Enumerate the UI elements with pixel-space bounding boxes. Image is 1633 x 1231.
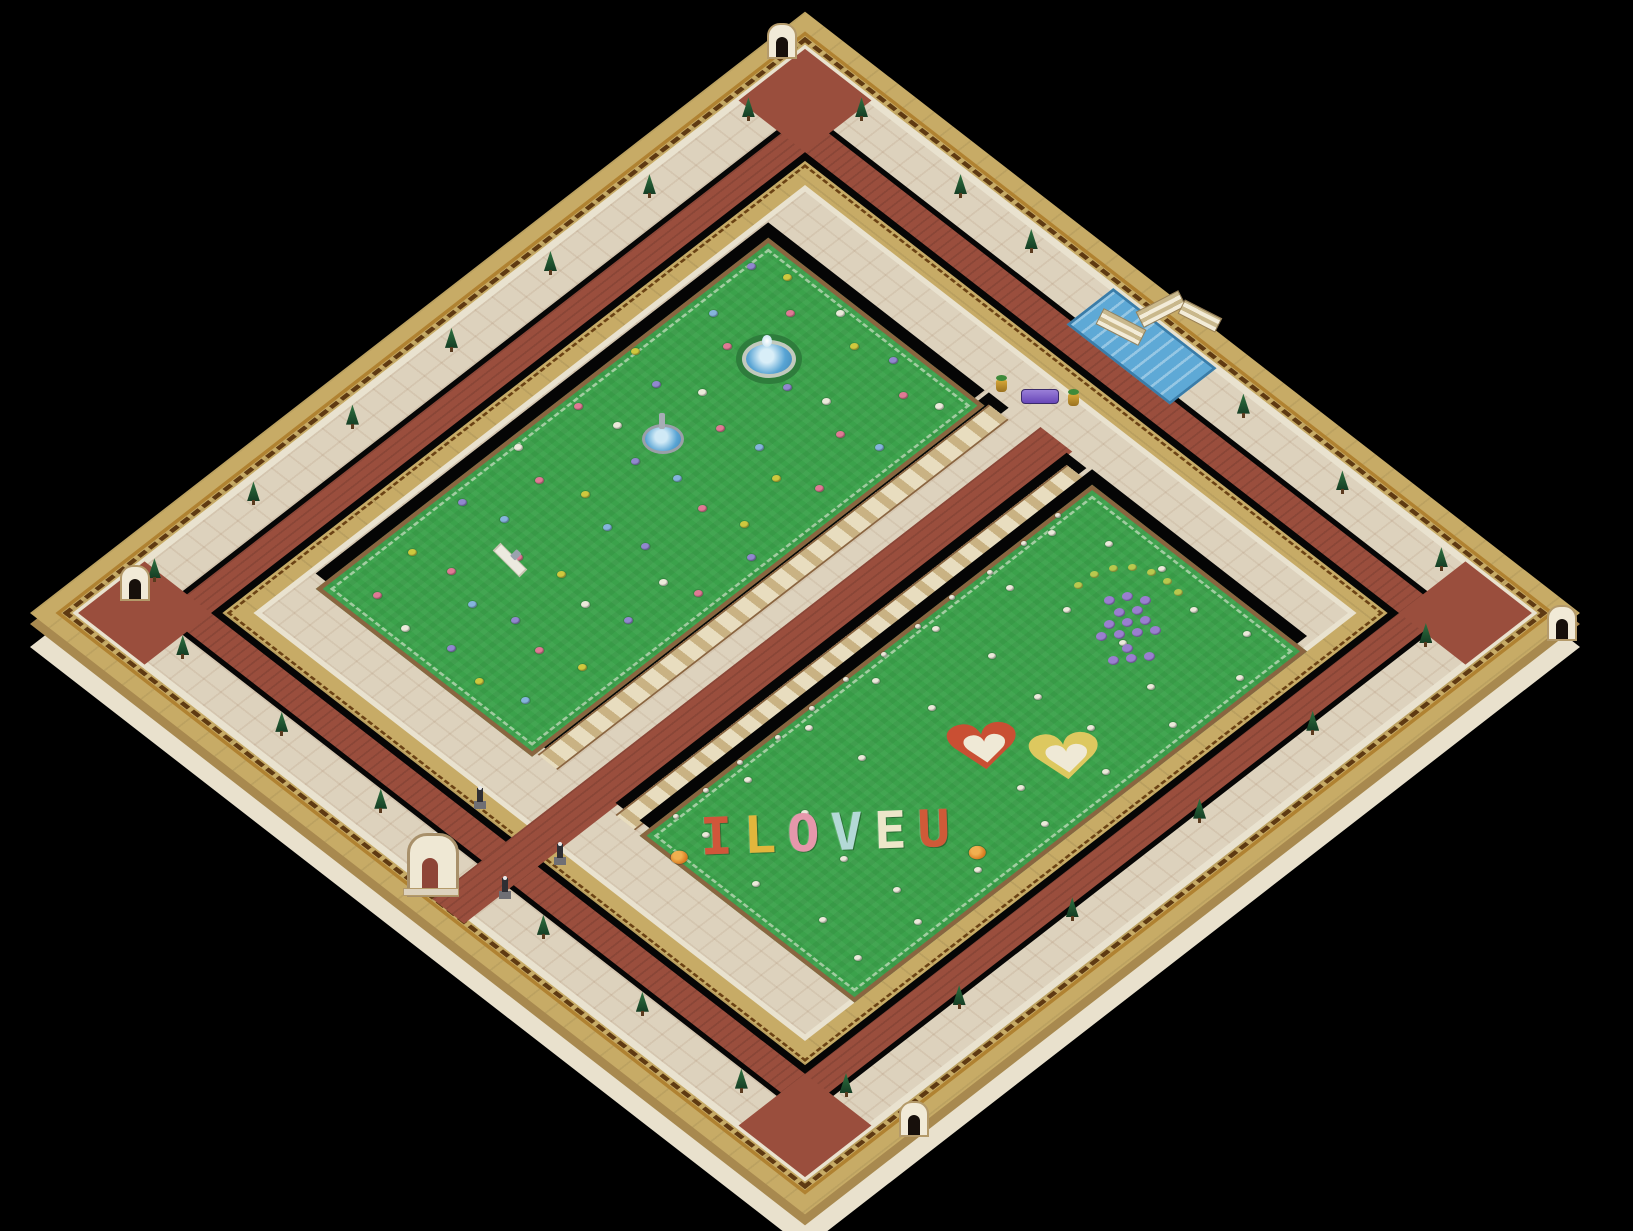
flower-cluster bbox=[843, 677, 849, 682]
tree-trunk bbox=[1030, 248, 1033, 253]
tree-foliage bbox=[445, 328, 458, 348]
flower-cluster bbox=[458, 499, 467, 506]
flower-cluster bbox=[1105, 541, 1113, 547]
cypress-tree bbox=[1193, 799, 1206, 823]
flower-cluster bbox=[1236, 675, 1244, 681]
totem-flower-dot bbox=[1104, 620, 1115, 629]
totem-flower-dot bbox=[1109, 565, 1118, 572]
flower-cluster bbox=[988, 653, 996, 659]
tree-trunk bbox=[845, 1092, 848, 1097]
cypress-tree bbox=[1336, 470, 1349, 494]
cypress-tree bbox=[537, 915, 550, 939]
tree-trunk bbox=[1424, 642, 1427, 647]
flower-cluster bbox=[624, 617, 633, 624]
heart-fill: ♥ bbox=[1039, 739, 1097, 781]
flower-cluster bbox=[858, 755, 866, 761]
statue-pedestal bbox=[474, 801, 486, 809]
flower-cluster bbox=[740, 521, 749, 528]
flower-text-iloveu: ILOVEU bbox=[699, 798, 962, 867]
flower-cluster bbox=[928, 705, 936, 711]
tree-foliage bbox=[735, 1069, 748, 1089]
flower-heart-yellow: ♥♥ bbox=[1017, 722, 1123, 792]
statue-figure bbox=[502, 878, 508, 892]
flower-cluster bbox=[775, 735, 781, 740]
flower-cluster bbox=[631, 458, 640, 465]
flower-cluster bbox=[899, 392, 908, 399]
tree-foliage bbox=[1193, 799, 1206, 819]
cypress-tree bbox=[374, 789, 387, 813]
tree-foliage bbox=[643, 174, 656, 194]
flower-planter bbox=[996, 380, 1007, 392]
flower-cluster bbox=[974, 867, 982, 873]
cypress-tree bbox=[176, 635, 189, 659]
tree-trunk bbox=[1311, 730, 1314, 735]
flower-cluster bbox=[1006, 585, 1014, 591]
flower-cluster bbox=[578, 664, 587, 671]
cypress-tree bbox=[1066, 897, 1079, 921]
totem-flower-dot bbox=[1174, 589, 1183, 596]
flower-cluster bbox=[659, 579, 668, 586]
tree-foliage bbox=[544, 251, 557, 271]
flower-cluster bbox=[574, 403, 583, 410]
flower-cluster bbox=[373, 592, 382, 599]
flower-cluster bbox=[447, 568, 456, 575]
tree-foliage bbox=[537, 915, 550, 935]
cypress-tree bbox=[735, 1069, 748, 1093]
flower-cluster bbox=[809, 706, 815, 711]
tree-foliage bbox=[953, 985, 966, 1005]
tree-foliage bbox=[148, 558, 161, 578]
totem-flower-dot bbox=[1150, 626, 1161, 635]
flower-cluster bbox=[772, 475, 781, 482]
tree-trunk bbox=[1341, 489, 1344, 494]
flower-cluster bbox=[987, 570, 993, 575]
flower-letter-E: E bbox=[873, 800, 919, 861]
flower-cluster bbox=[703, 788, 709, 793]
totem-flower-dot bbox=[1114, 608, 1125, 617]
flower-cluster bbox=[755, 444, 764, 451]
tree-trunk bbox=[747, 116, 750, 121]
flower-cluster bbox=[752, 881, 760, 887]
statue-plume bbox=[558, 842, 562, 846]
flower-cluster bbox=[698, 389, 707, 396]
flower-cluster bbox=[747, 554, 756, 561]
flower-cluster bbox=[468, 601, 477, 608]
flower-cluster bbox=[694, 590, 703, 597]
cypress-tree bbox=[1419, 623, 1432, 647]
tree-trunk bbox=[1198, 818, 1201, 823]
tree-trunk bbox=[379, 808, 382, 813]
flower-cluster bbox=[652, 381, 661, 388]
flower-cluster bbox=[1041, 821, 1049, 827]
totem-flower-dot bbox=[1074, 582, 1083, 589]
tree-foliage bbox=[247, 481, 260, 501]
flower-cluster bbox=[723, 343, 732, 350]
cypress-tree bbox=[247, 481, 260, 505]
flower-cluster bbox=[1190, 607, 1198, 613]
flower-cluster bbox=[1055, 513, 1061, 518]
knight-statue[interactable] bbox=[473, 787, 487, 809]
flower-cluster bbox=[836, 310, 845, 317]
scenery-sprites: ♥♥♥♥ILOVEU bbox=[0, 0, 1633, 1231]
flower-cluster bbox=[521, 697, 530, 704]
totem-flower-dot bbox=[1132, 606, 1143, 615]
flower-letter-U: U bbox=[917, 798, 963, 859]
tree-foliage bbox=[840, 1073, 853, 1093]
flower-cluster bbox=[822, 398, 831, 405]
flower-cluster bbox=[408, 549, 417, 556]
park-map-scene: ♥♥♥♥ILOVEU bbox=[0, 0, 1633, 1231]
cypress-tree bbox=[855, 97, 868, 121]
flower-cluster bbox=[850, 343, 859, 350]
cypress-tree bbox=[544, 251, 557, 275]
statue-figure bbox=[557, 844, 563, 858]
tree-trunk bbox=[351, 424, 354, 429]
flower-cluster bbox=[783, 384, 792, 391]
flower-cluster bbox=[872, 678, 880, 684]
statue-pedestal bbox=[554, 857, 566, 865]
orange-flower-accent bbox=[969, 846, 986, 860]
flower-cluster bbox=[932, 626, 940, 632]
tree-trunk bbox=[959, 193, 962, 198]
flower-cluster bbox=[836, 431, 845, 438]
tree-foliage bbox=[1435, 547, 1448, 567]
cypress-tree bbox=[1435, 547, 1448, 571]
totem-flower-dot bbox=[1122, 592, 1133, 601]
tree-foliage bbox=[636, 992, 649, 1012]
cypress-tree bbox=[1306, 711, 1319, 735]
flower-cluster bbox=[786, 310, 795, 317]
cypress-tree bbox=[643, 174, 656, 198]
flower-cluster bbox=[641, 543, 650, 550]
tree-trunk bbox=[450, 347, 453, 352]
flower-cluster bbox=[889, 357, 898, 364]
statue-pedestal bbox=[499, 891, 511, 899]
flower-cluster bbox=[535, 647, 544, 654]
flower-letter-O: O bbox=[786, 803, 832, 864]
totem-flower-dot bbox=[1163, 578, 1172, 585]
flower-cluster bbox=[581, 491, 590, 498]
cypress-tree bbox=[1237, 394, 1250, 418]
corner-gate-arch[interactable] bbox=[1547, 605, 1577, 641]
flower-planter bbox=[1068, 394, 1079, 406]
flower-cluster bbox=[805, 725, 813, 731]
tree-trunk bbox=[958, 1004, 961, 1009]
tree-foliage bbox=[1306, 711, 1319, 731]
flower-cluster bbox=[854, 955, 862, 961]
cypress-tree bbox=[742, 97, 755, 121]
flower-cluster bbox=[1048, 530, 1056, 536]
flower-cluster bbox=[914, 919, 922, 925]
tree-foliage bbox=[742, 97, 755, 117]
totem-flower-dot bbox=[1132, 628, 1143, 637]
flower-letter-L: L bbox=[743, 804, 789, 865]
knight-statue[interactable] bbox=[553, 843, 567, 865]
totem-flower-dot bbox=[1122, 644, 1133, 653]
flower-cluster bbox=[1169, 722, 1177, 728]
tree-trunk bbox=[181, 654, 184, 659]
flower-cluster bbox=[747, 263, 756, 270]
stair-bridge[interactable] bbox=[1095, 278, 1225, 358]
totem-flower-dot bbox=[1144, 652, 1155, 661]
flower-cluster bbox=[673, 814, 679, 819]
statue-fountain[interactable] bbox=[642, 424, 684, 454]
tree-trunk bbox=[648, 193, 651, 198]
flower-cluster bbox=[949, 595, 955, 600]
tree-trunk bbox=[252, 500, 255, 505]
flower-cluster bbox=[557, 571, 566, 578]
totem-flower-dot bbox=[1090, 571, 1099, 578]
flower-cluster bbox=[447, 645, 456, 652]
tree-foliage bbox=[1336, 470, 1349, 490]
tree-trunk bbox=[153, 577, 156, 582]
tree-trunk bbox=[280, 731, 283, 736]
totem-flower-dot bbox=[1140, 596, 1151, 605]
purple-bench[interactable] bbox=[1021, 389, 1059, 404]
cypress-tree bbox=[636, 992, 649, 1016]
flower-cluster bbox=[783, 274, 792, 281]
totem-flower-dot bbox=[1108, 656, 1119, 665]
heart-fill: ♥ bbox=[957, 729, 1015, 771]
tree-trunk bbox=[549, 270, 552, 275]
flower-cluster bbox=[737, 760, 743, 765]
flower-cluster bbox=[475, 678, 484, 685]
cypress-tree bbox=[275, 712, 288, 736]
purple-flower-totem bbox=[1060, 557, 1180, 667]
tree-trunk bbox=[1242, 413, 1245, 418]
totem-flower-dot bbox=[1140, 616, 1151, 625]
flower-cluster bbox=[1034, 694, 1042, 700]
flower-cluster bbox=[709, 310, 718, 317]
tree-foliage bbox=[1237, 394, 1250, 414]
flower-cluster bbox=[881, 652, 887, 657]
tree-trunk bbox=[860, 116, 863, 121]
corner-gate-arch[interactable] bbox=[899, 1101, 929, 1137]
flower-cluster bbox=[500, 516, 509, 523]
flower-cluster bbox=[915, 624, 921, 629]
flower-cluster bbox=[511, 617, 520, 624]
flower-cluster bbox=[514, 444, 523, 451]
flower-cluster bbox=[581, 601, 590, 608]
tree-trunk bbox=[641, 1011, 644, 1016]
flower-cluster bbox=[716, 425, 725, 432]
flower-cluster bbox=[613, 422, 622, 429]
totem-flower-dot bbox=[1122, 618, 1133, 627]
flower-cluster bbox=[1017, 785, 1025, 791]
tree-trunk bbox=[542, 934, 545, 939]
flower-cluster bbox=[1021, 541, 1027, 546]
bridge-right-flight[interactable] bbox=[1178, 299, 1223, 332]
tree-foliage bbox=[1025, 229, 1038, 249]
wreath-fountain[interactable] bbox=[742, 340, 796, 378]
tree-foliage bbox=[346, 405, 359, 425]
flower-cluster bbox=[1147, 684, 1155, 690]
totem-flower-dot bbox=[1114, 630, 1125, 639]
flower-cluster bbox=[698, 505, 707, 512]
cypress-tree bbox=[953, 985, 966, 1009]
totem-flower-dot bbox=[1104, 596, 1115, 605]
flower-cluster bbox=[893, 887, 901, 893]
tree-foliage bbox=[855, 97, 868, 117]
cypress-tree bbox=[840, 1073, 853, 1097]
flower-letter-I: I bbox=[699, 806, 745, 867]
statue-figure bbox=[477, 788, 483, 802]
orange-flower-accent bbox=[671, 851, 688, 865]
tree-trunk bbox=[740, 1088, 743, 1093]
flower-cluster bbox=[815, 485, 824, 492]
flower-cluster bbox=[535, 477, 544, 484]
knight-statue[interactable] bbox=[498, 877, 512, 899]
totem-flower-dot bbox=[1126, 654, 1137, 663]
tree-foliage bbox=[275, 712, 288, 732]
grand-gate-arch[interactable] bbox=[407, 833, 459, 897]
cypress-tree bbox=[1025, 229, 1038, 253]
corner-gate-arch[interactable] bbox=[767, 23, 797, 59]
flower-cluster bbox=[875, 444, 884, 451]
flower-cluster bbox=[819, 917, 827, 923]
totem-flower-dot bbox=[1128, 564, 1137, 571]
corner-gate-arch[interactable] bbox=[120, 565, 150, 601]
flower-letter-V: V bbox=[830, 801, 876, 862]
cypress-tree bbox=[954, 174, 967, 198]
flower-cluster bbox=[401, 625, 410, 632]
tree-foliage bbox=[1066, 897, 1079, 917]
flower-cluster bbox=[673, 475, 682, 482]
flower-cluster bbox=[631, 348, 640, 355]
totem-flower-dot bbox=[1147, 569, 1156, 576]
tree-trunk bbox=[1071, 916, 1074, 921]
flower-cluster bbox=[744, 777, 752, 783]
tree-foliage bbox=[374, 789, 387, 809]
tree-foliage bbox=[176, 635, 189, 655]
flower-cluster bbox=[1243, 631, 1251, 637]
totem-flower-dot bbox=[1096, 632, 1107, 641]
flower-cluster bbox=[935, 403, 944, 410]
flower-cluster bbox=[603, 524, 612, 531]
tree-foliage bbox=[1419, 623, 1432, 643]
tree-trunk bbox=[1440, 566, 1443, 571]
tree-foliage bbox=[954, 174, 967, 194]
cypress-tree bbox=[346, 405, 359, 429]
cypress-tree bbox=[445, 328, 458, 352]
